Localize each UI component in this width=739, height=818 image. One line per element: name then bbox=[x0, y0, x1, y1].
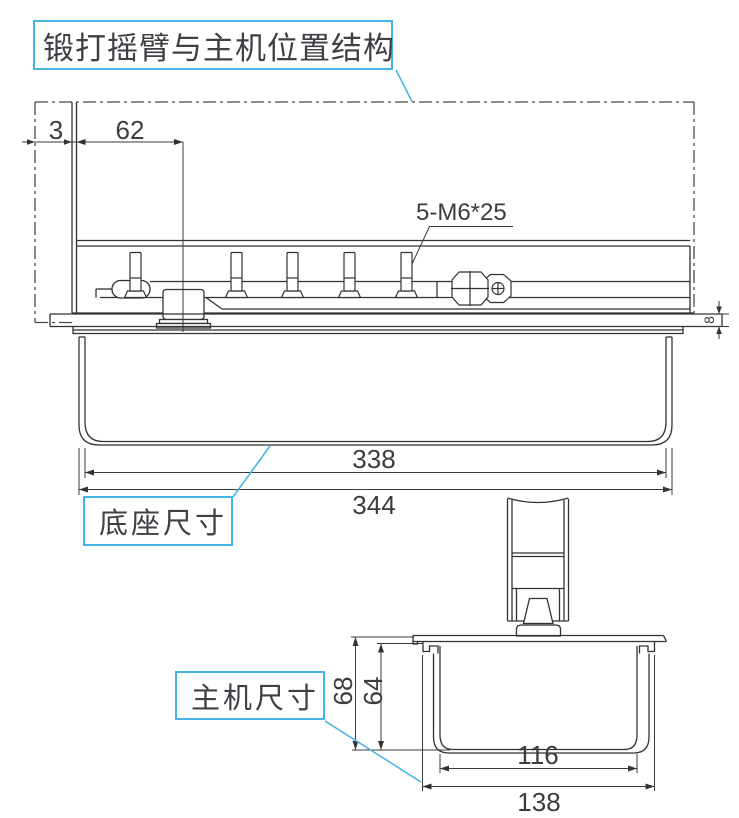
host-size-label: 主机尺寸 bbox=[175, 671, 325, 720]
dim-138-text: 138 bbox=[517, 787, 560, 817]
stud-bolt bbox=[125, 253, 147, 298]
drawing-title: 锻打摇臂与主机位置结构 bbox=[33, 20, 393, 70]
dim-3-text: 3 bbox=[49, 115, 63, 145]
dim-344-text: 344 bbox=[352, 490, 395, 520]
host-top-plate bbox=[413, 636, 667, 654]
dim-62-text: 62 bbox=[116, 115, 145, 145]
base-size-label-text: 底座尺寸 bbox=[99, 500, 227, 542]
dim-116-text: 116 bbox=[517, 740, 558, 770]
bolt-spec-leader bbox=[412, 227, 513, 265]
base-plate bbox=[50, 314, 722, 334]
drawing-canvas: 8 3 62 5-M6*25 338 344 bbox=[0, 0, 739, 818]
stud-bolt bbox=[226, 253, 248, 298]
dim-host-widths bbox=[423, 655, 655, 791]
bolt-spec-text: 5-M6*25 bbox=[416, 199, 507, 226]
host-label-leader bbox=[325, 721, 421, 782]
technical-drawing: 8 3 62 5-M6*25 338 344 bbox=[0, 0, 739, 818]
host-body bbox=[434, 646, 650, 753]
dim-8-text: 8 bbox=[701, 316, 717, 324]
rocker-arm-post bbox=[508, 498, 569, 636]
base-size-label: 底座尺寸 bbox=[83, 496, 233, 546]
stud-bolt bbox=[339, 253, 361, 298]
dim-338-text: 338 bbox=[352, 444, 395, 474]
stud-bolt bbox=[282, 253, 304, 298]
host-size-label-text: 主机尺寸 bbox=[191, 675, 319, 717]
machine-housing bbox=[72, 102, 694, 313]
dim-68-text: 68 bbox=[328, 677, 358, 706]
dim-64-text: 64 bbox=[358, 677, 388, 706]
clamp-knobs bbox=[451, 271, 511, 306]
dim-top-offsets bbox=[22, 139, 183, 144]
base-tub bbox=[79, 337, 672, 445]
title-leader bbox=[396, 70, 412, 102]
drawing-title-text: 锻打摇臂与主机位置结构 bbox=[43, 23, 395, 68]
